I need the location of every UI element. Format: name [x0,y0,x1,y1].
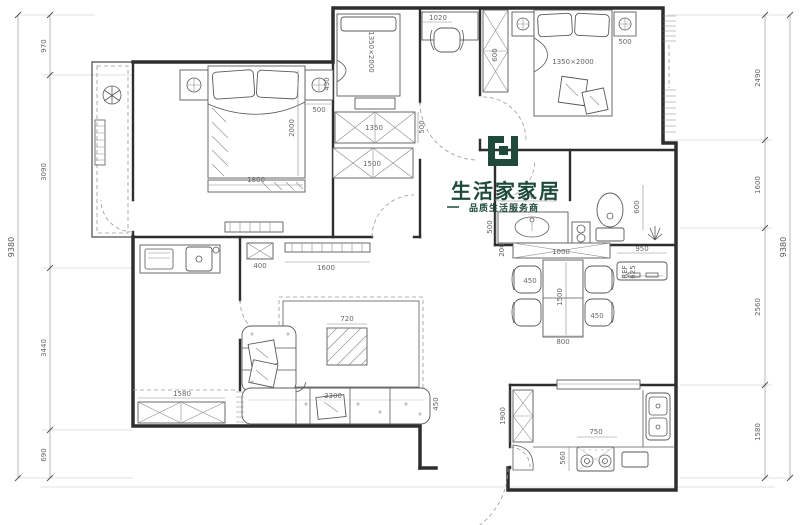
dim-master-bed: 1350×2000 [552,58,594,66]
dim-toilet-zone: 600 [633,200,641,213]
dim-wardrobe-a-depth: 500 [418,120,426,133]
door-entry [436,468,508,525]
study-side-table [355,98,395,109]
dining-room: 1000 200 950 REF 625 450 450 1500 800 [498,243,667,346]
toilet [596,193,624,241]
dim-desk-width: 1020 [429,14,447,22]
dim-counter-depth: 560 [559,451,567,464]
logo-tagline: 品质生活服务商 [469,202,539,214]
balcony-top-left [95,66,128,233]
dim-balcony-cabinet: 1580 [173,390,191,398]
nightstand-left [180,70,208,100]
plant-small-icon [648,226,662,240]
dim-tv-cabinet: 1600 [317,264,335,272]
balcony-cabinet [138,402,225,423]
fridge-label: REF [621,265,629,278]
tall-cabinet [513,390,533,442]
dim-right-2490: 2490 [754,69,762,87]
dim-left-970: 970 [40,39,48,52]
dim-stove-width: 750 [589,428,602,436]
dim-sofa-length: 3300 [324,392,342,400]
dim-tall-unit: 1900 [499,407,507,425]
dim-master-wardrobe: 600 [491,48,499,61]
nightstand-master-right [614,12,636,36]
door-hallway [420,102,478,160]
study-room: 1350×2000 1350 500 1500 [333,14,426,178]
dim-side-cabinet: 400 [253,262,266,270]
dim-left-3440: 3440 [40,339,48,357]
desk-chair [430,28,463,52]
dim-fridge-width: 950 [635,245,648,253]
hallway-desk: 1020 [422,12,478,52]
dim-wardrobe-b: 1500 [363,160,381,168]
laundry-cabinet [572,222,590,243]
logo-title: 生活家家居 [451,179,561,203]
radiator-hatch [95,120,105,165]
dim-coffee-table: 720 [340,315,353,323]
stove [577,447,614,471]
dim-chair-right: 450 [590,312,603,320]
vanity-second [140,245,220,273]
nightstand-master-left [512,12,534,36]
dim-nightstand-width: 500 [312,106,325,114]
dim-sideboard-width: 1000 [552,248,570,256]
balcony-bottom-left: 1580 [133,390,244,423]
sofa-pillow [249,360,278,388]
dim-right-2560: 2560 [754,298,762,316]
dim-left-3090: 3090 [40,163,48,181]
door-arcs [101,97,535,525]
dimension-chain-right: 2490 1600 2560 1580 9380 [754,12,793,481]
dimension-chain-left: 970 3090 3440 690 9380 [7,12,53,481]
logo-mark-icon [488,136,518,166]
dim-fridge-depth: 625 [629,265,637,278]
double-sink [646,393,670,440]
dim-right-total: 9380 [779,237,788,257]
tv-side-cabinet [247,243,273,259]
living-room: 400 1600 720 3300 450 [242,243,440,424]
brand-logo: 生活家家居 品质生活服务商 [447,136,561,214]
dim-wardrobe-a: 1350 [365,124,383,132]
dim-master-nightstand: 500 [618,38,631,46]
dim-chair-left: 450 [523,277,536,285]
dim-left-total: 9380 [7,237,16,257]
dim-vanity-depth: 500 [486,220,494,233]
window-master [663,16,676,132]
dim-bed-width: 1800 [247,176,265,184]
kitchen: 1900 750 560 [499,380,676,471]
tv-cabinet-bedroom [225,222,283,232]
kitchen-window [557,380,640,389]
dim-left-690: 690 [40,448,48,461]
door-master [483,97,526,140]
tv-cabinet-living [285,243,370,252]
dim-nightstand-depth: 450 [323,77,331,90]
dim-study-bed: 1350×2000 [367,31,375,73]
bedroom-left: 1800 2000 500 450 [180,66,333,232]
dim-table-width: 800 [556,338,569,346]
dim-right-1600: 1600 [754,176,762,194]
dim-right-1580: 1580 [754,423,762,441]
master-bedroom: 1350×2000 600 500 [483,10,676,132]
door-study [372,195,414,237]
floor-plan-page: 970 3090 3440 690 9380 2490 1600 2560 15… [0,0,800,525]
dim-bed-length: 2000 [288,119,296,137]
dim-table-length: 1500 [556,288,564,306]
dim-sofa-depth: 450 [432,397,440,410]
dim-sideboard-depth: 200 [498,243,506,256]
floor-plan-svg: 970 3090 3440 690 9380 2490 1600 2560 15… [0,0,800,525]
plant-icon [103,86,121,104]
cutting-board [622,452,648,467]
bath-second [140,245,220,273]
coffee-table [327,328,367,365]
vanity-sink [498,212,568,243]
